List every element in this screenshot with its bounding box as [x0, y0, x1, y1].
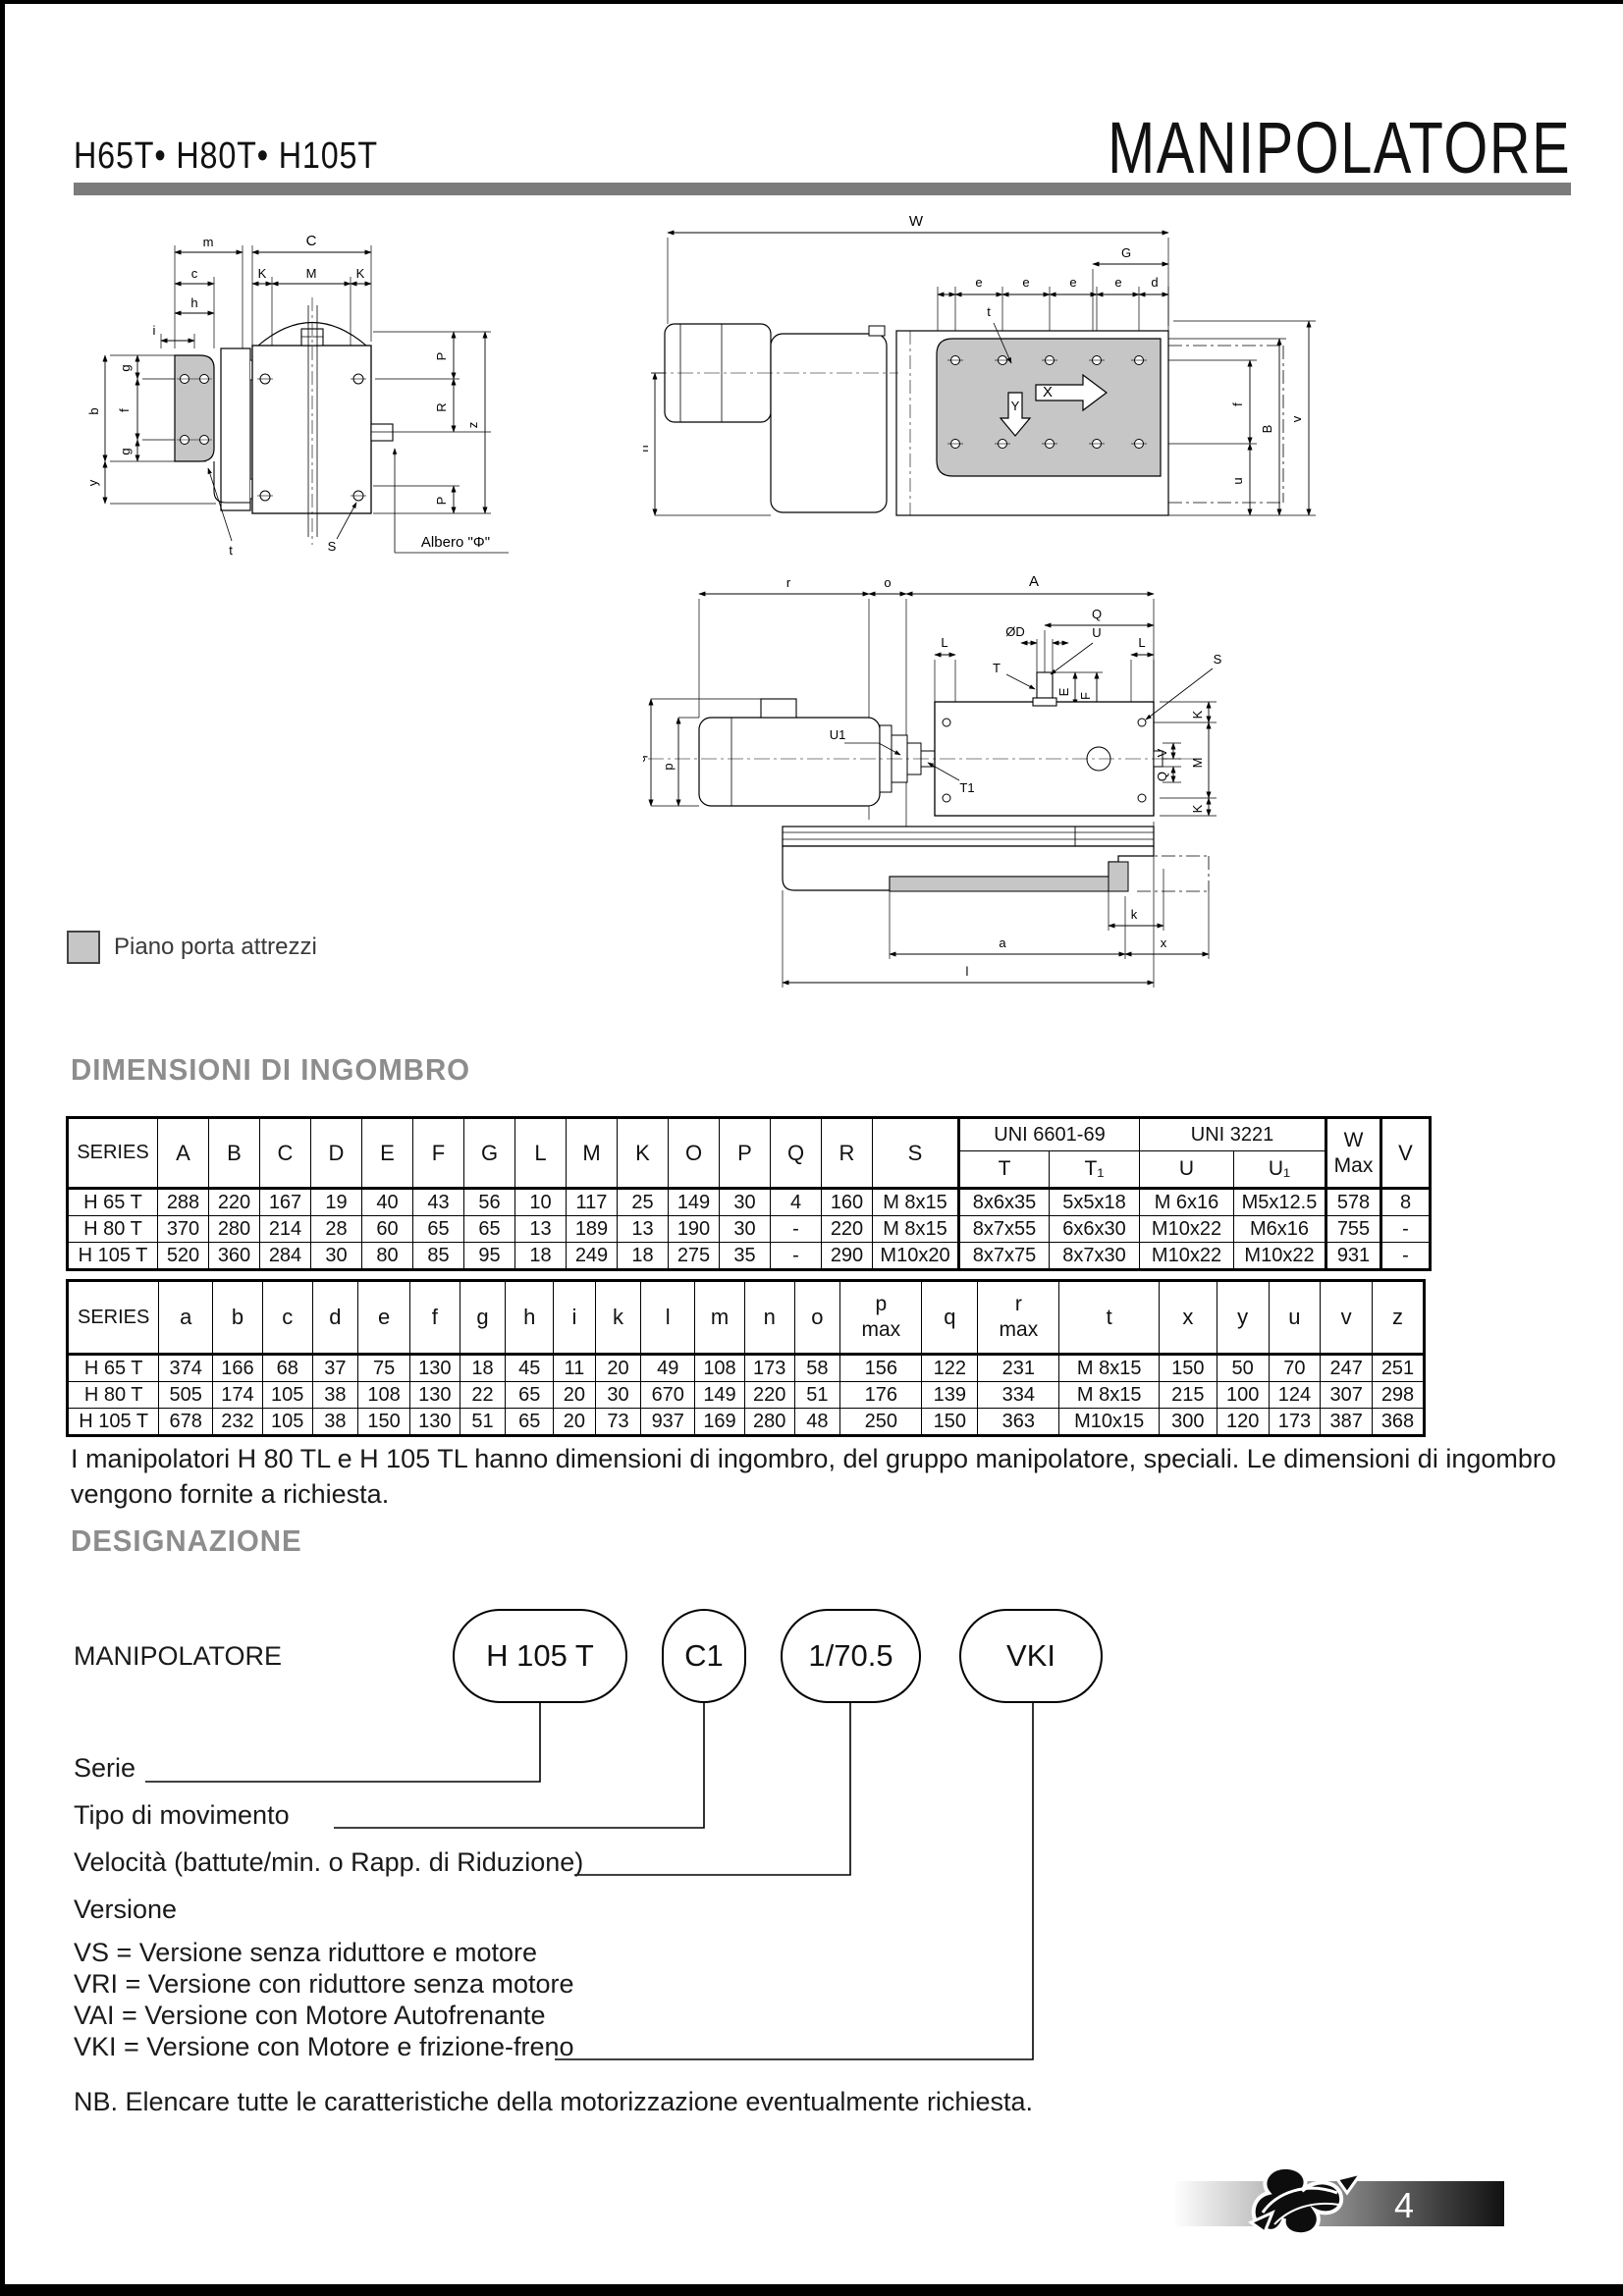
value-cell: 149	[669, 1189, 720, 1216]
dim-label: P	[434, 497, 449, 506]
value-cell: 43	[413, 1189, 464, 1216]
value-cell: 150	[1159, 1355, 1217, 1382]
dim-label: W	[909, 213, 924, 230]
shaft-label: Albero "Φ"	[421, 534, 490, 551]
value-cell: 334	[978, 1382, 1059, 1409]
dim-label: f	[117, 408, 132, 412]
column-header: a	[159, 1281, 213, 1355]
value-cell: 231	[978, 1355, 1059, 1382]
column-header: e	[358, 1281, 410, 1355]
dim-label: F	[1078, 692, 1093, 700]
value-cell: 49	[641, 1355, 695, 1382]
series-cell: H 105 T	[68, 1243, 158, 1270]
value-cell: 130	[409, 1409, 460, 1436]
dim-label: M	[306, 266, 317, 281]
datasheet-page: H65T• H80T• H105T MANIPOLATORE	[0, 0, 1623, 2296]
column-header: k	[595, 1281, 641, 1355]
value-cell: 166	[213, 1355, 263, 1382]
value-cell: 150	[358, 1409, 410, 1436]
gray-bar	[890, 877, 1128, 891]
column-header: M	[567, 1118, 618, 1189]
dim-label: y	[85, 479, 100, 486]
value-cell: 37	[312, 1355, 358, 1382]
value-cell: M10x22	[1234, 1243, 1326, 1270]
dim-label: B	[1260, 425, 1274, 434]
value-cell: 931	[1326, 1243, 1381, 1270]
dim-label: ØD	[1005, 624, 1025, 639]
value-cell: 290	[822, 1243, 873, 1270]
value-cell: 505	[159, 1382, 213, 1409]
column-header: p max	[840, 1281, 922, 1355]
value-cell: 298	[1373, 1382, 1425, 1409]
value-cell: 520	[158, 1243, 209, 1270]
value-cell: 189	[567, 1216, 618, 1243]
series-cell: H 65 T	[68, 1355, 159, 1382]
legend-label: Piano porta attrezzi	[114, 934, 317, 961]
value-cell: -	[771, 1243, 822, 1270]
value-cell: 8x7x55	[959, 1216, 1050, 1243]
value-cell: 124	[1269, 1382, 1321, 1409]
value-cell: 755	[1326, 1216, 1381, 1243]
value-cell: 8	[1381, 1189, 1431, 1216]
table-row: H 80 T37028021428606565131891319030-220M…	[68, 1216, 1431, 1243]
value-cell: 22	[460, 1382, 506, 1409]
value-cell: 150	[922, 1409, 978, 1436]
value-cell: M5x12.5	[1234, 1189, 1326, 1216]
dim-label: t	[229, 543, 233, 558]
section-heading-dimensioni: DIMENSIONI DI INGOMBRO	[71, 1052, 470, 1088]
column-header: R	[822, 1118, 873, 1189]
dim-table-2: SERIES a b c d e f g h i k l m n o p	[66, 1279, 1426, 1437]
value-cell: 18	[618, 1243, 669, 1270]
value-cell: 374	[159, 1355, 213, 1382]
dim-label: q	[643, 755, 648, 762]
value-cell: M 6x16	[1140, 1189, 1234, 1216]
dim-label: n	[643, 445, 651, 452]
value-cell: 5x5x18	[1050, 1189, 1140, 1216]
value-cell: 220	[822, 1216, 873, 1243]
dim-label: d	[1151, 275, 1158, 290]
value-cell: 190	[669, 1216, 720, 1243]
value-cell: 130	[409, 1355, 460, 1382]
value-cell: 678	[159, 1409, 213, 1436]
pin	[1037, 672, 1053, 698]
dim-label: v	[1289, 415, 1304, 422]
value-cell: 65	[506, 1409, 554, 1436]
column-header: q	[922, 1281, 978, 1355]
column-header: t	[1059, 1281, 1159, 1355]
dim-label: Q	[1092, 607, 1102, 621]
value-cell: 174	[213, 1382, 263, 1409]
value-cell: 4	[771, 1189, 822, 1216]
dim-label: K	[258, 266, 267, 281]
uni-group-header: UNI 6601-69	[959, 1118, 1140, 1151]
value-cell: 370	[158, 1216, 209, 1243]
column-header: E	[362, 1118, 413, 1189]
value-cell: 149	[695, 1382, 745, 1409]
value-cell: 173	[1269, 1409, 1321, 1436]
value-cell: 65	[413, 1216, 464, 1243]
column-header: g	[460, 1281, 506, 1355]
value-cell: 48	[794, 1409, 840, 1436]
value-cell: 247	[1321, 1355, 1373, 1382]
value-cell: -	[1381, 1243, 1431, 1270]
dim-label: f	[1230, 402, 1245, 406]
column-header: L	[515, 1118, 567, 1189]
value-cell: 108	[358, 1382, 410, 1409]
section-heading-designazione: DESIGNAZIONE	[71, 1523, 302, 1559]
value-cell: 20	[554, 1409, 596, 1436]
column-header: SERIES	[68, 1118, 158, 1189]
column-header: T₁	[1050, 1151, 1140, 1189]
value-cell: 70	[1269, 1355, 1321, 1382]
value-cell: 284	[260, 1243, 311, 1270]
r-line: r	[978, 1292, 1058, 1317]
value-cell: 75	[358, 1355, 410, 1382]
value-cell: 387	[1321, 1409, 1373, 1436]
column-header: r max	[978, 1281, 1059, 1355]
value-cell: 100	[1217, 1382, 1269, 1409]
value-cell: 288	[158, 1189, 209, 1216]
dim-label: p	[661, 763, 676, 770]
value-cell: 58	[794, 1355, 840, 1382]
column-header: h	[506, 1281, 554, 1355]
version-item-vai: VAI = Versione con Motore Autofrenante	[74, 2001, 546, 2031]
series-cell: H 80 T	[68, 1216, 158, 1243]
stroke-travel-phantom	[1168, 346, 1283, 503]
column-header: K	[618, 1118, 669, 1189]
note-paragraph: I manipolatori H 80 TL e H 105 TL hanno …	[71, 1441, 1573, 1512]
dim-label: x	[1161, 935, 1167, 950]
max-line: max	[840, 1317, 921, 1343]
value-cell: 30	[720, 1216, 771, 1243]
dim-label: A	[1029, 573, 1039, 590]
value-cell: 19	[311, 1189, 362, 1216]
value-cell: 275	[669, 1243, 720, 1270]
callout-versione: Versione	[74, 1895, 177, 1925]
value-cell: M10x22	[1140, 1243, 1234, 1270]
column-header: d	[312, 1281, 358, 1355]
value-cell: M 8x15	[873, 1189, 959, 1216]
dim-label: G	[1121, 245, 1131, 260]
value-cell: 51	[460, 1409, 506, 1436]
machine-shapes	[651, 324, 1283, 515]
value-cell: 578	[1326, 1189, 1381, 1216]
value-cell: M10x15	[1059, 1409, 1159, 1436]
series-cell: H 80 T	[68, 1382, 159, 1409]
value-cell: 45	[506, 1355, 554, 1382]
dim-label: L	[941, 635, 947, 650]
value-cell: 20	[554, 1382, 596, 1409]
value-cell: 368	[1373, 1409, 1425, 1436]
value-cell: 130	[409, 1382, 460, 1409]
dim-label: M	[1190, 758, 1205, 769]
value-cell: 280	[744, 1409, 794, 1436]
value-cell: M 8x15	[873, 1216, 959, 1243]
knot-logo-icon	[1251, 2167, 1361, 2234]
callout-tipo: Tipo di movimento	[74, 1800, 290, 1831]
column-header: l	[641, 1281, 695, 1355]
column-header: F	[413, 1118, 464, 1189]
version-item-vki: VKI = Versione con Motore e frizione-fre…	[74, 2032, 574, 2062]
column-header: f	[409, 1281, 460, 1355]
max-line: max	[978, 1317, 1058, 1343]
dim-label: e	[1114, 275, 1121, 290]
value-cell: 30	[595, 1382, 641, 1409]
callout-serie: Serie	[74, 1753, 135, 1784]
max-line: Max	[1327, 1153, 1380, 1179]
value-cell: 60	[362, 1216, 413, 1243]
value-cell: M6x16	[1234, 1216, 1326, 1243]
dim-label: i	[153, 323, 156, 338]
value-cell: 232	[213, 1409, 263, 1436]
value-cell: M 8x15	[1059, 1382, 1159, 1409]
table-row: H 80 T5051741053810813022652030670149220…	[68, 1382, 1425, 1409]
value-cell: 105	[262, 1409, 312, 1436]
value-cell: M10x20	[873, 1243, 959, 1270]
front-view-drawing: m C c K M K h i b g f g y P R P z t S Al…	[59, 201, 511, 614]
dim-label: u	[1230, 477, 1245, 484]
page-title: MANIPOLATORE	[1108, 106, 1571, 189]
dim-label: L	[1138, 635, 1145, 650]
column-header: v	[1321, 1281, 1373, 1355]
value-cell: 120	[1217, 1409, 1269, 1436]
table-row: H 105 T52036028430808595182491827535-290…	[68, 1243, 1431, 1270]
table-header-row: SERIES A B C D E F G L M K O P Q R S UNI	[68, 1118, 1431, 1151]
column-header: x	[1159, 1281, 1217, 1355]
dim-label: T	[993, 661, 1001, 675]
value-cell: 13	[515, 1216, 567, 1243]
column-header: D	[311, 1118, 362, 1189]
column-header: W Max	[1326, 1118, 1381, 1189]
value-cell: 215	[1159, 1382, 1217, 1409]
dim-label: z	[465, 422, 480, 429]
dim-label: S	[1214, 652, 1222, 667]
column-header: U	[1140, 1151, 1234, 1189]
dim-label: K	[1190, 710, 1205, 719]
dim-label: K	[356, 266, 365, 281]
dim-label: X	[1043, 384, 1053, 400]
value-cell: 51	[794, 1382, 840, 1409]
page-number: 4	[1375, 2185, 1434, 2226]
value-cell: 167	[260, 1189, 311, 1216]
column-header: z	[1373, 1281, 1425, 1355]
dim-label: K	[1190, 804, 1205, 813]
value-cell: 11	[554, 1355, 596, 1382]
dim-label: Y	[1011, 399, 1020, 413]
column-header: i	[554, 1281, 596, 1355]
value-cell: 220	[209, 1189, 260, 1216]
table-row: H 65 T288220167194043561011725149304160M…	[68, 1189, 1431, 1216]
column-header: Q	[771, 1118, 822, 1189]
column-header: y	[1217, 1281, 1269, 1355]
column-header: P	[720, 1118, 771, 1189]
w-line: W	[1327, 1128, 1380, 1153]
legend: Piano porta attrezzi	[67, 931, 317, 964]
value-cell: 169	[695, 1409, 745, 1436]
dim-label: U	[1092, 625, 1101, 640]
value-cell: 13	[618, 1216, 669, 1243]
value-cell: M 8x15	[1059, 1355, 1159, 1382]
dim-label: b	[86, 407, 101, 414]
value-cell: 160	[822, 1189, 873, 1216]
value-cell: 18	[460, 1355, 506, 1382]
callout-velocita: Velocità (battute/min. o Rapp. di Riduzi…	[74, 1847, 583, 1878]
value-cell: 30	[311, 1243, 362, 1270]
dim-label: e	[1069, 275, 1076, 290]
value-cell: 117	[567, 1189, 618, 1216]
value-cell: 214	[260, 1216, 311, 1243]
column-header: G	[464, 1118, 515, 1189]
column-header: A	[158, 1118, 209, 1189]
value-cell: 670	[641, 1382, 695, 1409]
dim-label: e	[975, 275, 982, 290]
value-cell: 937	[641, 1409, 695, 1436]
value-cell: 176	[840, 1382, 922, 1409]
column-header: m	[695, 1281, 745, 1355]
value-cell: 300	[1159, 1409, 1217, 1436]
dim-label: e	[1022, 275, 1029, 290]
dim-label: m	[203, 235, 214, 249]
dim-table-1: SERIES A B C D E F G L M K O P Q R S UNI	[66, 1116, 1432, 1271]
value-cell: 68	[262, 1355, 312, 1382]
dim-label: U1	[830, 727, 846, 742]
value-cell: 10	[515, 1189, 567, 1216]
column-header: n	[744, 1281, 794, 1355]
value-cell: 18	[515, 1243, 567, 1270]
dim-label: E	[1056, 687, 1071, 696]
dim-label: R	[434, 402, 449, 411]
tool-plate	[175, 355, 214, 461]
dim-label: a	[999, 935, 1006, 950]
model-list: H65T• H80T• H105T	[74, 135, 378, 178]
column-header: V	[1381, 1118, 1431, 1189]
dim-label: P	[434, 352, 449, 361]
scan-edge-bottom	[0, 2284, 1623, 2296]
version-item-vs: VS = Versione senza riduttore e motore	[74, 1938, 537, 1968]
value-cell: 8x7x30	[1050, 1243, 1140, 1270]
dim-label: g	[118, 364, 133, 371]
dim-label: l	[966, 964, 969, 979]
value-cell: -	[771, 1216, 822, 1243]
column-header: c	[262, 1281, 312, 1355]
value-cell: -	[1381, 1216, 1431, 1243]
nb-note: NB. Elencare tutte le caratteristiche de…	[74, 2087, 1033, 2117]
dim-label: V	[1155, 748, 1169, 757]
value-cell: 8x7x75	[959, 1243, 1050, 1270]
dim-label: o	[884, 575, 891, 590]
legend-swatch	[67, 931, 100, 964]
value-cell: 80	[362, 1243, 413, 1270]
value-cell: 38	[312, 1382, 358, 1409]
brand-logo	[1245, 2154, 1373, 2252]
value-cell: 105	[262, 1382, 312, 1409]
value-cell: 25	[618, 1189, 669, 1216]
value-cell: 250	[840, 1409, 922, 1436]
uni-group-header: UNI 3221	[1140, 1118, 1326, 1151]
value-cell: 108	[695, 1355, 745, 1382]
dim-label: c	[191, 266, 198, 281]
value-cell: 363	[978, 1409, 1059, 1436]
dim-label: g	[118, 448, 133, 454]
column-header: b	[213, 1281, 263, 1355]
value-cell: 360	[209, 1243, 260, 1270]
value-cell: 249	[567, 1243, 618, 1270]
series-cell: H 65 T	[68, 1189, 158, 1216]
value-cell: 95	[464, 1243, 515, 1270]
value-cell: 20	[595, 1355, 641, 1382]
dim-label: k	[1131, 907, 1138, 922]
dim-label: Q	[1155, 772, 1169, 781]
column-header: O	[669, 1118, 720, 1189]
value-cell: 38	[312, 1409, 358, 1436]
column-header: T	[959, 1151, 1050, 1189]
dim-label: S	[328, 539, 337, 554]
value-cell: 251	[1373, 1355, 1425, 1382]
scan-edge-top	[0, 0, 1623, 4]
table-header-row: SERIES a b c d e f g h i k l m n o p	[68, 1281, 1425, 1355]
table-row: H 105 T678232105381501305165207393716928…	[68, 1409, 1425, 1436]
column-header: C	[260, 1118, 311, 1189]
column-header: o	[794, 1281, 840, 1355]
value-cell: 156	[840, 1355, 922, 1382]
dim-label: C	[306, 233, 317, 249]
value-cell: 56	[464, 1189, 515, 1216]
value-cell: 73	[595, 1409, 641, 1436]
value-cell: 307	[1321, 1382, 1373, 1409]
value-cell: M10x22	[1140, 1216, 1234, 1243]
side-view-arm-drawing: r o A Q ØD U L L T E F S q p U1 T1 K V M…	[643, 535, 1365, 1001]
version-item-vri: VRI = Versione con riduttore senza motor…	[74, 1969, 574, 2000]
dim-label: t	[987, 304, 991, 319]
value-cell: 40	[362, 1189, 413, 1216]
dim-label: r	[786, 575, 791, 590]
value-cell: 122	[922, 1355, 978, 1382]
table-row: H 65 T3741666837751301845112049108173581…	[68, 1355, 1425, 1382]
column-header: SERIES	[68, 1281, 159, 1355]
machine-shapes	[175, 297, 393, 545]
value-cell: 8x6x35	[959, 1189, 1050, 1216]
series-cell: H 105 T	[68, 1409, 159, 1436]
value-cell: 35	[720, 1243, 771, 1270]
value-cell: 220	[744, 1382, 794, 1409]
value-cell: 50	[1217, 1355, 1269, 1382]
dim-label: T1	[959, 780, 974, 795]
dim-label: h	[190, 295, 197, 310]
column-header: U₁	[1234, 1151, 1326, 1189]
value-cell: 30	[720, 1189, 771, 1216]
value-cell: 65	[506, 1382, 554, 1409]
value-cell: 6x6x30	[1050, 1216, 1140, 1243]
value-cell: 65	[464, 1216, 515, 1243]
value-cell: 139	[922, 1382, 978, 1409]
phantom-lines	[1137, 856, 1209, 891]
column-header: B	[209, 1118, 260, 1189]
machine-shapes	[648, 672, 1209, 891]
value-cell: 280	[209, 1216, 260, 1243]
top-view-drawing: W G e e e e d t X Y n f u B v	[643, 208, 1330, 532]
header-rule	[74, 183, 1571, 195]
column-header: u	[1269, 1281, 1321, 1355]
gray-column	[1109, 862, 1128, 891]
value-cell: 173	[744, 1355, 794, 1382]
column-header: S	[873, 1118, 959, 1189]
p-line: p	[840, 1292, 921, 1317]
value-cell: 85	[413, 1243, 464, 1270]
value-cell: 28	[311, 1216, 362, 1243]
